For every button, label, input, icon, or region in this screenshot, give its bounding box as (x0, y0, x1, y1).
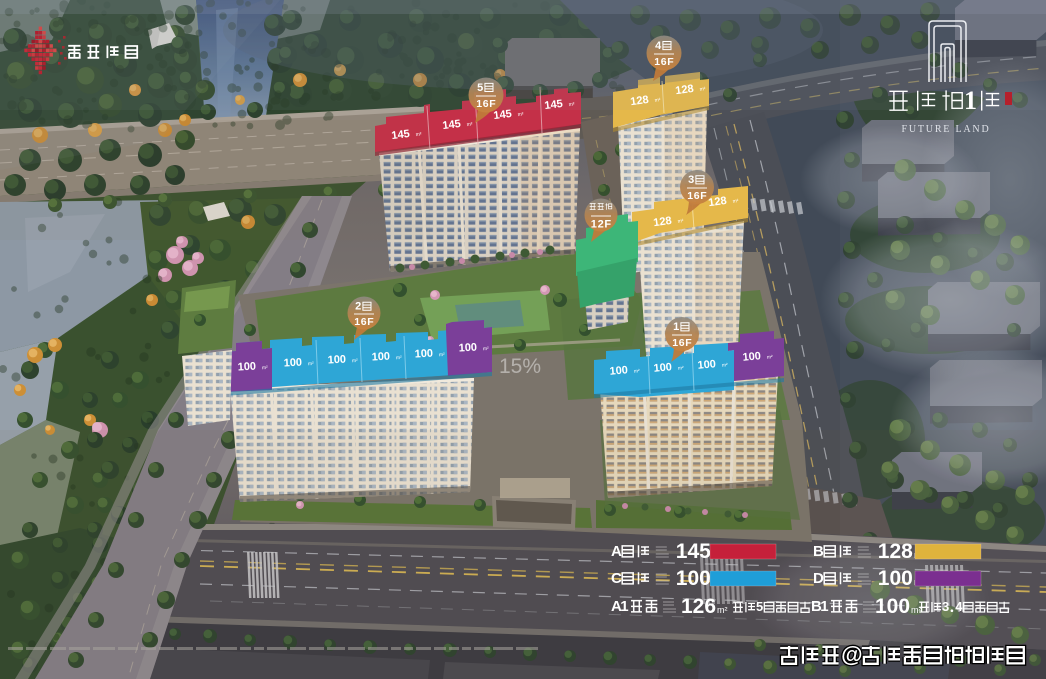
svg-text:6: 6 (679, 337, 685, 349)
svg-text:128: 128 (653, 215, 673, 229)
svg-text:4: 4 (655, 40, 662, 52)
svg-text:m²: m² (483, 346, 489, 352)
svg-text:m²: m² (517, 111, 524, 118)
svg-text:m²: m² (352, 358, 358, 364)
svg-text:@: @ (841, 642, 862, 667)
svg-text:m²: m² (699, 86, 706, 93)
svg-text:m²: m² (415, 131, 422, 138)
svg-text:m²: m² (308, 361, 314, 367)
svg-text:m²: m² (396, 355, 402, 361)
svg-text:4: 4 (955, 599, 963, 614)
svg-text:100: 100 (237, 361, 256, 374)
svg-text:1: 1 (591, 219, 597, 231)
svg-text:FUTURE LAND: FUTURE LAND (902, 124, 991, 135)
svg-text:m²: m² (767, 354, 774, 361)
svg-text:6: 6 (361, 316, 367, 328)
svg-text:145: 145 (442, 118, 462, 132)
svg-text:m²: m² (732, 198, 739, 205)
svg-text:F: F (604, 219, 611, 231)
svg-text:6: 6 (483, 98, 489, 110)
svg-text:128: 128 (675, 83, 695, 97)
svg-text:2: 2 (598, 219, 604, 231)
svg-text:D: D (813, 570, 824, 587)
svg-text:128: 128 (630, 94, 650, 108)
svg-text:5: 5 (477, 82, 483, 94)
svg-text:100: 100 (676, 567, 711, 590)
svg-text:128: 128 (878, 540, 913, 563)
svg-text:1: 1 (820, 598, 828, 615)
svg-text:100: 100 (653, 361, 672, 375)
svg-text:m²: m² (717, 605, 728, 615)
svg-text:m²: m² (262, 365, 268, 371)
svg-text:C: C (611, 570, 622, 587)
svg-text:m²: m² (678, 365, 685, 372)
svg-text:100: 100 (283, 357, 302, 370)
svg-text:1: 1 (476, 98, 482, 110)
svg-text:m²: m² (911, 605, 922, 615)
svg-text:6: 6 (694, 190, 700, 202)
svg-text:F: F (367, 316, 374, 328)
svg-text:15%: 15% (499, 355, 541, 378)
svg-text:m²: m² (568, 101, 575, 108)
svg-text:3: 3 (942, 599, 949, 614)
svg-text:3: 3 (688, 174, 694, 186)
svg-text:100: 100 (327, 354, 346, 367)
svg-text:1: 1 (687, 190, 693, 202)
svg-text:145: 145 (544, 98, 564, 112)
svg-text:100: 100 (697, 358, 716, 372)
svg-text:145: 145 (676, 540, 711, 563)
svg-text:1: 1 (354, 316, 360, 328)
svg-text:145: 145 (493, 108, 513, 122)
svg-text:1: 1 (672, 337, 678, 349)
svg-text:m²: m² (439, 352, 445, 358)
svg-text:F: F (667, 56, 674, 68)
svg-text:100: 100 (414, 348, 433, 361)
svg-text:5: 5 (756, 599, 763, 614)
svg-text:m²: m² (654, 97, 661, 104)
svg-text:1: 1 (673, 321, 679, 333)
svg-text:A: A (611, 543, 622, 560)
svg-text:100: 100 (458, 342, 477, 355)
svg-text:145: 145 (391, 128, 411, 142)
svg-text:m²: m² (677, 218, 684, 225)
svg-text:1: 1 (620, 598, 628, 615)
svg-text:100: 100 (371, 351, 390, 364)
svg-text:m²: m² (634, 368, 641, 375)
svg-text:F: F (700, 190, 707, 202)
svg-text:126: 126 (681, 595, 716, 618)
svg-text:100: 100 (875, 595, 910, 618)
svg-text:6: 6 (661, 56, 667, 68)
svg-text:1: 1 (964, 86, 977, 115)
svg-text:m²: m² (722, 362, 729, 369)
svg-text:1: 1 (654, 56, 660, 68)
svg-text:100: 100 (878, 567, 913, 590)
svg-text:F: F (685, 337, 692, 349)
svg-text:100: 100 (609, 364, 628, 378)
svg-text:m²: m² (466, 121, 473, 128)
svg-text:100: 100 (742, 350, 761, 364)
svg-text:B: B (813, 543, 824, 560)
svg-text:F: F (489, 98, 496, 110)
svg-text:2: 2 (355, 301, 361, 313)
